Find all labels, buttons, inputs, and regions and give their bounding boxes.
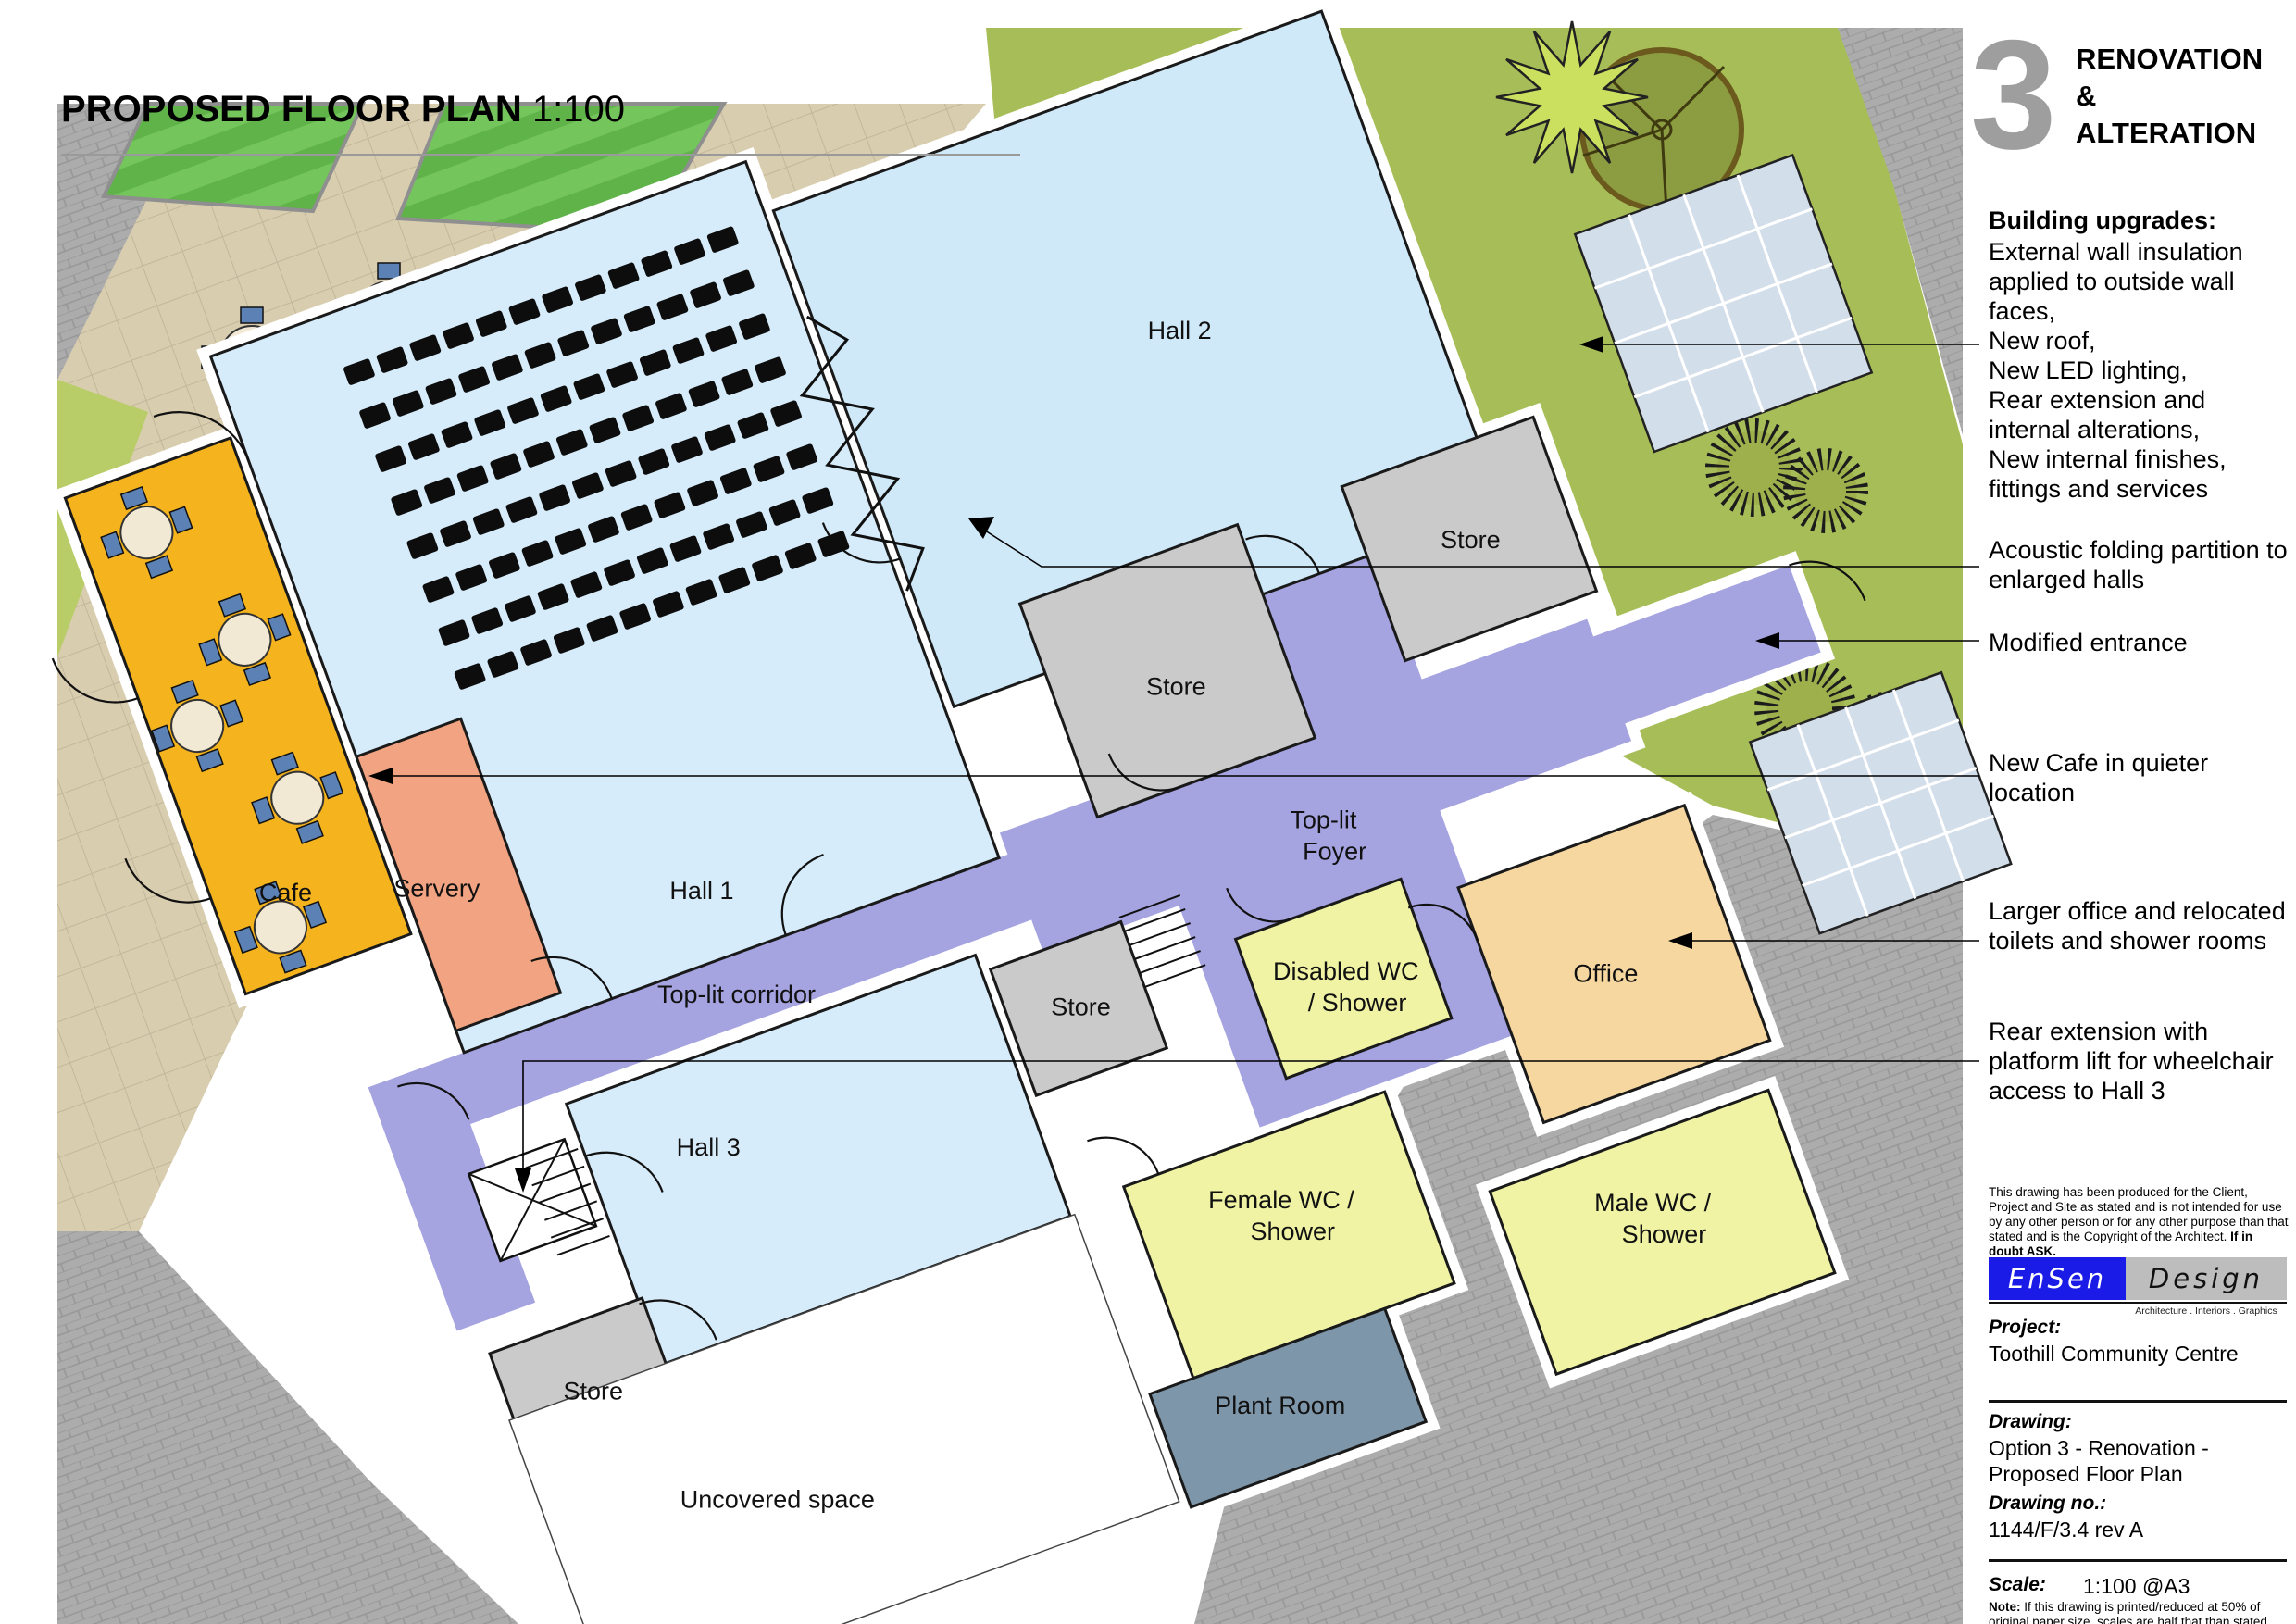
- upgrades-list: External wall insulation applied to outs…: [1989, 237, 2289, 504]
- label-hall2: Hall 2: [1148, 317, 1212, 344]
- option-number: 3: [1970, 17, 2056, 172]
- label-store-mid: Store: [1146, 672, 1206, 700]
- project-label: Project:: [1989, 1317, 2061, 1339]
- company-logo: EnSen Design: [1989, 1257, 2287, 1300]
- page-title-scale: 1:100: [532, 89, 625, 130]
- label-corridor: Top-lit corridor: [657, 981, 816, 1008]
- label-office: Office: [1573, 959, 1638, 987]
- label-store-corridor: Store: [1051, 993, 1111, 1020]
- label-plant: Plant Room: [1215, 1392, 1345, 1419]
- label-store-rear: Store: [564, 1378, 624, 1405]
- project-value: Toothill Community Centre: [1989, 1341, 2276, 1367]
- label-male-2: Shower: [1622, 1220, 1707, 1248]
- label-hall1: Hall 1: [669, 877, 733, 905]
- label-foyer-2: Foyer: [1303, 838, 1366, 866]
- disclaimer: This drawing has been produced for the C…: [1989, 1185, 2289, 1259]
- label-disabled-2: / Shower: [1308, 989, 1407, 1017]
- titleblock-rule-2: [1989, 1559, 2287, 1562]
- annotation-rear: Rear extension with platform lift for wh…: [1989, 1017, 2289, 1106]
- logo-subtitle: Architecture . Interiors . Graphics: [2126, 1305, 2287, 1317]
- label-female-2: Shower: [1250, 1218, 1335, 1245]
- bush: [1717, 431, 1791, 505]
- floor-plan: Cafe Servery Hall 1 Hall 2 Hall 3 Top-li…: [0, 0, 2296, 1624]
- scale-value: 1:100 @A3: [2083, 1574, 2190, 1599]
- upgrade-item: New internal finishes, fittings and serv…: [1989, 444, 2289, 504]
- page-title: PROPOSED FLOOR PLAN 1:100: [61, 89, 625, 131]
- label-servery: Servery: [393, 875, 480, 903]
- drawing-label: Drawing:: [1989, 1411, 2072, 1433]
- annotation-cafe: New Cafe in quieter location: [1989, 748, 2289, 807]
- logo-design: Design: [2126, 1257, 2287, 1300]
- drawing-no-label: Drawing no.:: [1989, 1493, 2106, 1515]
- annotation-entrance: Modified entrance: [1989, 628, 2289, 657]
- bush: [1794, 459, 1857, 522]
- annotation-office: Larger office and relocated toilets and …: [1989, 896, 2289, 956]
- upgrade-item: New roof,: [1989, 326, 2289, 356]
- title-underline: [61, 154, 1020, 156]
- drawing-no-value: 1144/F/3.4 rev A: [1989, 1517, 2276, 1543]
- label-female-1: Female WC /: [1208, 1186, 1354, 1214]
- upgrades-title: Building upgrades:: [1989, 206, 2289, 235]
- titleblock-rule: [1989, 1400, 2287, 1403]
- upgrade-item: Rear extension and internal alterations,: [1989, 385, 2289, 444]
- label-store-top: Store: [1441, 526, 1501, 554]
- footer-note: Note: If this drawing is printed/reduced…: [1989, 1600, 2289, 1624]
- label-male-1: Male WC /: [1594, 1189, 1712, 1217]
- upgrade-item: External wall insulation applied to outs…: [1989, 237, 2289, 326]
- upgrade-item: New LED lighting,: [1989, 356, 2289, 385]
- label-uncovered: Uncovered space: [680, 1486, 875, 1514]
- label-hall3: Hall 3: [677, 1133, 741, 1161]
- label-cafe: Cafe: [259, 879, 312, 906]
- label-foyer-1: Top-lit: [1290, 806, 1357, 834]
- scale-label: Scale:: [1989, 1574, 2046, 1596]
- drawing-value: Option 3 - Renovation - Proposed Floor P…: [1989, 1435, 2276, 1487]
- page-title-main: PROPOSED FLOOR PLAN: [61, 89, 522, 130]
- option-badge-text: RENOVATION & ALTERATION: [2076, 41, 2263, 152]
- annotation-acoustic: Acoustic folding partition to enlarged h…: [1989, 535, 2289, 594]
- logo-ensen: EnSen: [1989, 1257, 2126, 1300]
- label-disabled-1: Disabled WC: [1273, 957, 1419, 985]
- drawing-sheet: Cafe Servery Hall 1 Hall 2 Hall 3 Top-li…: [0, 0, 2296, 1624]
- logo-underline: [1989, 1302, 2287, 1304]
